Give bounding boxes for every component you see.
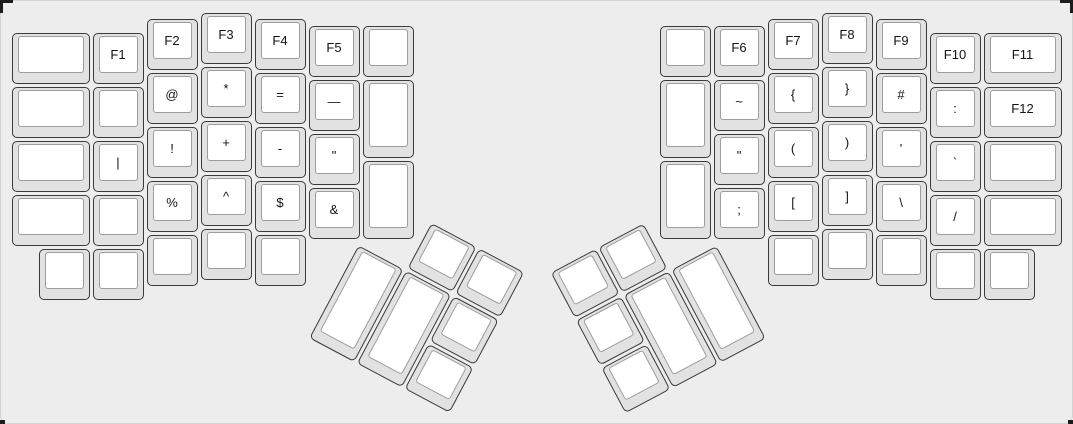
keycap-label xyxy=(369,29,408,66)
corner-mark-bottom-right xyxy=(1067,418,1073,424)
key-equals[interactable]: = xyxy=(255,73,306,124)
corner-mark-bottom-left xyxy=(0,418,6,424)
key-blank[interactable] xyxy=(255,235,306,286)
key-tilde[interactable]: ~ xyxy=(714,80,765,131)
key-ampersand[interactable]: & xyxy=(309,188,360,239)
key-f6[interactable]: F6 xyxy=(714,26,765,77)
keycap-label: F5 xyxy=(315,29,354,66)
keycap-label xyxy=(18,144,84,181)
keycap-label xyxy=(828,232,867,269)
key-paren-open[interactable]: ( xyxy=(768,127,819,178)
key-backslash[interactable]: \ xyxy=(876,181,927,232)
key-paren-close[interactable]: ) xyxy=(822,121,873,172)
key-blank[interactable] xyxy=(876,235,927,286)
key-blank-tall[interactable] xyxy=(660,80,711,158)
key-f1[interactable]: F1 xyxy=(93,33,144,84)
key-blank[interactable] xyxy=(363,26,414,77)
key-blank[interactable] xyxy=(660,26,711,77)
keycap-label: F4 xyxy=(261,22,300,59)
key-blank[interactable] xyxy=(39,249,90,300)
keycap-label: F3 xyxy=(207,16,246,53)
keycap-label: " xyxy=(720,137,759,174)
keycap-label: — xyxy=(315,83,354,120)
key-semicolon[interactable]: ; xyxy=(714,188,765,239)
key-f12[interactable]: F12 xyxy=(984,87,1062,138)
keycap-label: - xyxy=(261,130,300,167)
keycap-label xyxy=(369,83,408,147)
key-blank[interactable] xyxy=(12,195,90,246)
keycap-label: ; xyxy=(720,191,759,228)
key-f7[interactable]: F7 xyxy=(768,19,819,70)
keycap-label xyxy=(99,90,138,127)
keycap-label: F6 xyxy=(720,29,759,66)
keycap-label: / xyxy=(936,198,975,235)
keycap-label xyxy=(882,238,921,275)
key-blank[interactable] xyxy=(201,229,252,280)
keycap-label: F2 xyxy=(153,22,192,59)
keycap-label: ~ xyxy=(720,83,759,120)
keycap-label xyxy=(18,36,84,73)
keycap-label: ` xyxy=(936,144,975,181)
key-blank[interactable] xyxy=(768,235,819,286)
key-bracket-close[interactable]: ] xyxy=(822,175,873,226)
key-f2[interactable]: F2 xyxy=(147,19,198,70)
keycap-label: } xyxy=(828,70,867,107)
key-plus[interactable]: + xyxy=(201,121,252,172)
keycap-label xyxy=(774,238,813,275)
keycap-label: : xyxy=(936,90,975,127)
key-hash[interactable]: # xyxy=(876,73,927,124)
key-colon[interactable]: : xyxy=(930,87,981,138)
key-blank[interactable] xyxy=(822,229,873,280)
key-blank[interactable] xyxy=(93,195,144,246)
keycap-label: F7 xyxy=(774,22,813,59)
keycap-label: $ xyxy=(261,184,300,221)
keycap-label: @ xyxy=(153,76,192,113)
key-f10[interactable]: F10 xyxy=(930,33,981,84)
keycap-label: = xyxy=(261,76,300,113)
keycap-label: F1 xyxy=(99,36,138,73)
key-brace-close[interactable]: } xyxy=(822,67,873,118)
layout-editor-canvas: F1F2F3F4F5@*=—|!+-"%^$&F6F7F8F9F10F11~{}… xyxy=(0,0,1073,424)
keycap-label xyxy=(153,238,192,275)
keycap-label: [ xyxy=(774,184,813,221)
key-slash[interactable]: / xyxy=(930,195,981,246)
keycap-label: # xyxy=(882,76,921,113)
key-minus[interactable]: - xyxy=(255,127,306,178)
key-blank-tall[interactable] xyxy=(363,161,414,239)
key-dash[interactable]: — xyxy=(309,80,360,131)
key-backtick[interactable]: ` xyxy=(930,141,981,192)
key-f5[interactable]: F5 xyxy=(309,26,360,77)
corner-mark-top-left xyxy=(0,0,14,14)
keycap-label: * xyxy=(207,70,246,107)
keycap-label xyxy=(261,238,300,275)
key-dollar[interactable]: $ xyxy=(255,181,306,232)
key-f8[interactable]: F8 xyxy=(822,13,873,64)
key-blank[interactable] xyxy=(93,249,144,300)
key-percent[interactable]: % xyxy=(147,181,198,232)
key-double-quote[interactable]: " xyxy=(309,134,360,185)
key-blank[interactable] xyxy=(984,141,1062,192)
keycap-label: & xyxy=(315,191,354,228)
keycap-label: | xyxy=(99,144,138,181)
key-blank-tall[interactable] xyxy=(363,80,414,158)
corner-mark-top-right xyxy=(1059,0,1073,14)
key-blank[interactable] xyxy=(12,141,90,192)
key-f9[interactable]: F9 xyxy=(876,19,927,70)
key-f11[interactable]: F11 xyxy=(984,33,1062,84)
key-blank[interactable] xyxy=(12,87,90,138)
key-quote[interactable]: ' xyxy=(876,127,927,178)
keycap-label: ] xyxy=(828,178,867,215)
keycap-label xyxy=(18,198,84,235)
keycap-label: { xyxy=(774,76,813,113)
key-blank[interactable] xyxy=(984,195,1062,246)
keycap-label: \ xyxy=(882,184,921,221)
key-double-quote[interactable]: " xyxy=(714,134,765,185)
key-exclamation[interactable]: ! xyxy=(147,127,198,178)
keycap-label: ' xyxy=(882,130,921,167)
keycap-label: " xyxy=(315,137,354,174)
keycap-label: ( xyxy=(774,130,813,167)
key-asterisk[interactable]: * xyxy=(201,67,252,118)
key-bracket-open[interactable]: [ xyxy=(768,181,819,232)
key-blank[interactable] xyxy=(12,33,90,84)
keycap-label xyxy=(99,198,138,235)
key-blank[interactable] xyxy=(984,249,1035,300)
key-blank[interactable] xyxy=(930,249,981,300)
keycap-label xyxy=(990,144,1056,181)
keycap-label: F9 xyxy=(882,22,921,59)
keycap-label: F10 xyxy=(936,36,975,73)
keycap-label xyxy=(666,83,705,147)
keycap-label: ! xyxy=(153,130,192,167)
keycap-label xyxy=(990,198,1056,235)
key-f4[interactable]: F4 xyxy=(255,19,306,70)
keycap-label xyxy=(666,29,705,66)
keycap-label: + xyxy=(207,124,246,161)
key-caret[interactable]: ^ xyxy=(201,175,252,226)
key-at[interactable]: @ xyxy=(147,73,198,124)
keycap-label: % xyxy=(153,184,192,221)
keycap-label xyxy=(369,164,408,228)
key-blank[interactable] xyxy=(93,87,144,138)
keycap-label xyxy=(936,252,975,289)
keycap-label: F11 xyxy=(990,36,1056,73)
keycap-label xyxy=(99,252,138,289)
key-brace-open[interactable]: { xyxy=(768,73,819,124)
keycap-label xyxy=(990,252,1029,289)
keycap-label: F8 xyxy=(828,16,867,53)
keycap-label: ^ xyxy=(207,178,246,215)
keycap-label xyxy=(45,252,84,289)
key-blank-tall[interactable] xyxy=(660,161,711,239)
key-f3[interactable]: F3 xyxy=(201,13,252,64)
keycap-label: F12 xyxy=(990,90,1056,127)
key-blank[interactable] xyxy=(147,235,198,286)
keycap-label xyxy=(18,90,84,127)
keycap-label: ) xyxy=(828,124,867,161)
keycap-label xyxy=(207,232,246,269)
keycap-label xyxy=(666,164,705,228)
key-pipe[interactable]: | xyxy=(93,141,144,192)
